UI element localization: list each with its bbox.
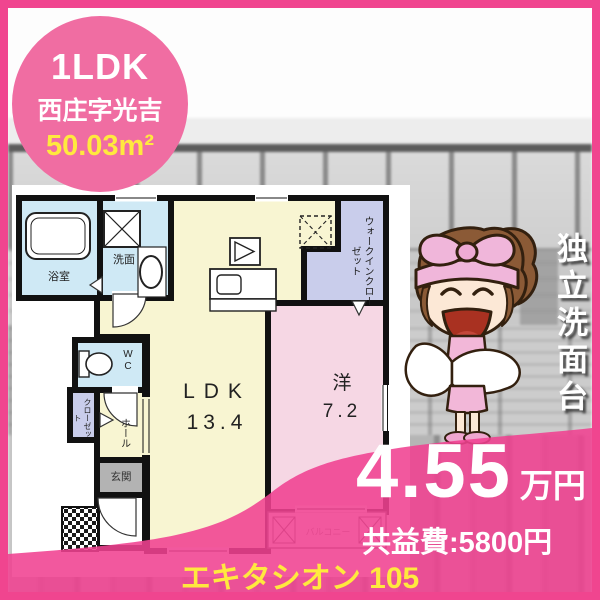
flyer-canvas: 浴室 洗面 WC クローゼット ホール 玄関 LDK 13.4 洋 7.2 ウォ… bbox=[8, 8, 592, 592]
rent-unit: 万円 bbox=[520, 459, 586, 507]
rent-price: 4.55 万円 bbox=[356, 434, 586, 510]
rental-flyer: 浴室 洗面 WC クローゼット ホール 玄関 LDK 13.4 洋 7.2 ウォ… bbox=[0, 0, 600, 600]
rent-amount: 4.55 bbox=[356, 434, 512, 510]
property-title: エキタシオン 105 bbox=[98, 553, 502, 592]
